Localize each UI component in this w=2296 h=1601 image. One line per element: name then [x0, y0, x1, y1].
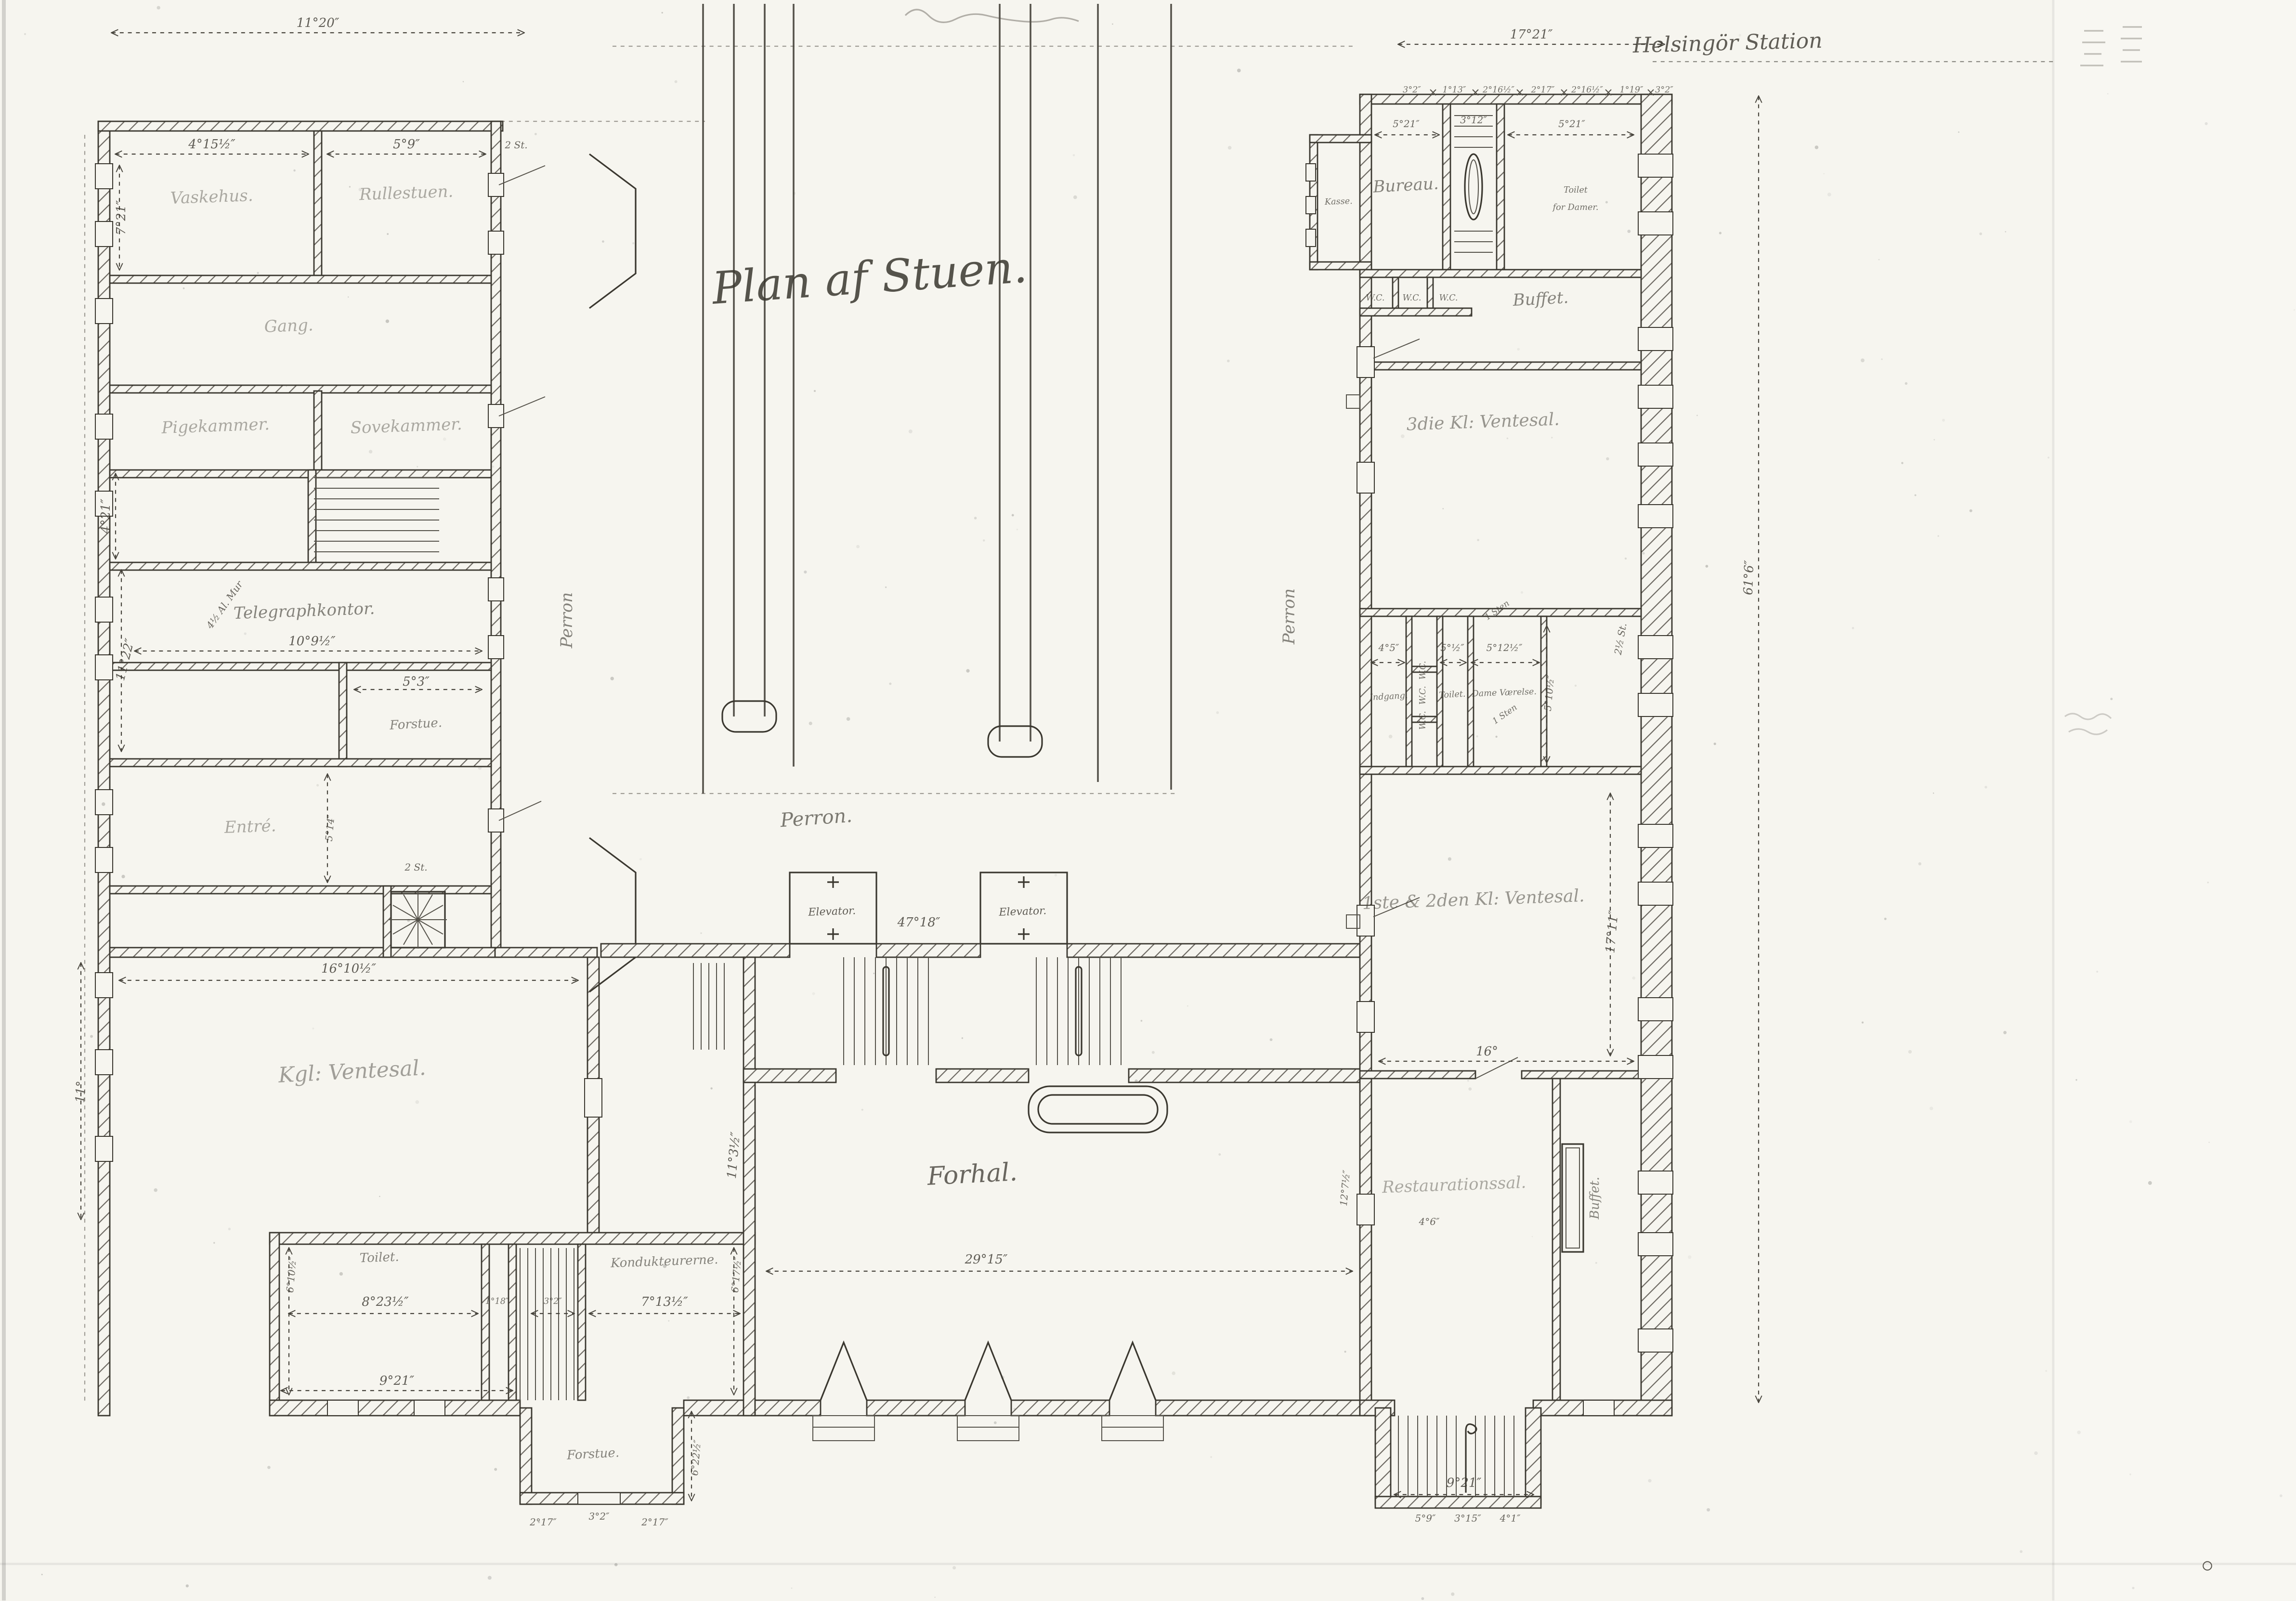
dim-label: 11°22″	[113, 637, 138, 682]
dim-label: 3°2″	[1403, 85, 1421, 95]
dim-label: 2°17″	[1531, 85, 1555, 95]
room-label: Buffet.	[1588, 1177, 1602, 1220]
dim-label: 16°10½″	[321, 962, 376, 976]
dim-label: 5°21″	[1393, 118, 1420, 130]
room-label: Forstue.	[389, 716, 442, 733]
dim-label: 1°13″	[1443, 85, 1466, 95]
room-label: Toilet.	[1439, 690, 1466, 701]
dim-label: 3°2″	[544, 1297, 562, 1306]
bay-window	[589, 154, 636, 308]
elevator-label: Elevator.	[998, 905, 1047, 918]
room-label: W.C.	[1418, 661, 1428, 679]
room-label: Bureau.	[1372, 174, 1439, 196]
stair-newel-inner	[1469, 160, 1478, 214]
dim-label: 5°10½″	[1542, 674, 1556, 711]
perron-label: Perron	[1279, 588, 1299, 645]
room-label: Dame Værelse.	[1471, 687, 1537, 699]
dim-label: 11°20″	[297, 16, 339, 30]
dim-label: 7°13½″	[641, 1295, 688, 1309]
dim-label: 47°18″	[897, 915, 940, 930]
stair-treads	[314, 478, 439, 552]
dim-label: 61°6″	[1741, 560, 1757, 596]
right-wing	[1306, 94, 1673, 1508]
paper-right-band	[2053, 0, 2296, 1601]
dim-label: 11°	[73, 1080, 89, 1104]
wall-note: 1 Sten	[1491, 703, 1519, 726]
dim-label: 1°18″	[485, 1297, 509, 1306]
room-label: Buffet.	[1512, 288, 1569, 310]
left-wing	[95, 121, 636, 1416]
dim-label: 2°16½″	[1571, 85, 1603, 95]
room-label: Entré.	[223, 816, 276, 837]
windbreak	[1029, 1086, 1167, 1132]
dim-label: 6°22½″	[689, 1439, 703, 1476]
dim-label: 4°1″	[1500, 1512, 1521, 1524]
dim-label: 1°19″	[1620, 85, 1644, 95]
dim-label: 5°21″	[1558, 118, 1585, 130]
perron-label: Perron	[557, 592, 576, 649]
dim-label: 5°9″	[393, 137, 420, 152]
dim-label: 6°10½″	[284, 1256, 299, 1293]
room-label: for Damer.	[1552, 203, 1599, 212]
track-area	[613, 4, 1356, 794]
room-label: W.C.	[1418, 686, 1428, 704]
room-label: Kasse.	[1324, 196, 1353, 207]
forhal-block	[744, 1069, 1360, 1441]
dim-label: 17°21″	[1510, 27, 1553, 42]
dim-label: 16°	[1476, 1044, 1498, 1059]
room-label: Gang.	[264, 315, 313, 337]
dim-label: 12°7½″	[1338, 1169, 1352, 1206]
dim-label: 2°17″	[529, 1516, 557, 1528]
side-stair-treads	[693, 963, 724, 1050]
dim-label: 8°23½″	[362, 1295, 409, 1309]
storey-note: 2 St.	[404, 861, 427, 873]
room-label: Toilet	[1564, 185, 1588, 195]
dim-label: 2°16½″	[1482, 85, 1514, 95]
stair-treads	[520, 1248, 574, 1400]
scan-speckles	[24, 6, 2295, 1600]
dim-label: 6°17½″	[729, 1256, 744, 1293]
room-label: 1ste & 2den Kl: Ventesal.	[1362, 886, 1585, 913]
room-label: Kondukteurerne.	[610, 1252, 718, 1271]
room-label: W.C.	[1439, 293, 1458, 303]
dim-label: 5°3″	[403, 675, 430, 689]
storey-note: 2 St.	[504, 139, 527, 151]
room-label: Indgang.	[1369, 691, 1408, 703]
station-name: Helsingör Station	[1632, 28, 1823, 58]
spiral-stair-steps	[389, 891, 447, 949]
dim-label: 4°21″	[99, 499, 113, 534]
dim-label: 4°15½″	[188, 137, 235, 152]
room-label: W.C.	[1366, 293, 1384, 303]
main-stair-treads	[1036, 957, 1121, 1065]
room-label: Sovekammer.	[350, 415, 462, 438]
dim-label: 9°21″	[1447, 1476, 1482, 1490]
dim-label: 3°12″	[1460, 114, 1487, 126]
dim-label: 5°14″	[323, 814, 337, 842]
buffer-stop	[988, 726, 1042, 757]
elevator-label: Elevator.	[808, 905, 856, 918]
buffet-counter-inner	[1566, 1148, 1579, 1248]
dim-label: 29°15″	[965, 1252, 1008, 1267]
perron-label: Perron.	[779, 805, 853, 832]
room-label: Telegraphkontor.	[233, 599, 375, 623]
dim-label: 7°21″	[114, 200, 129, 235]
dim-label: 5°12½″	[1486, 642, 1523, 653]
main-stair-treads	[844, 957, 928, 1065]
room-label: Rullestuen.	[358, 182, 453, 205]
buffet-counter	[1562, 1144, 1583, 1252]
ghost-writing-top	[905, 10, 1079, 22]
stair-hall	[601, 872, 1360, 1416]
dim-label: 10°9½″	[288, 634, 336, 649]
dim-label: 5°½″	[1440, 642, 1464, 653]
door-swings	[1373, 339, 1518, 1079]
dim-label: 4°5″	[1378, 642, 1399, 653]
room-label: 3die Kl: Ventesal.	[1406, 409, 1560, 434]
dim-label: 2°17″	[641, 1516, 668, 1528]
dim-label: 5°9″	[1415, 1512, 1436, 1524]
porch-post	[1346, 395, 1360, 408]
dim-label: 9°21″	[379, 1374, 415, 1388]
buffer-stop	[722, 701, 776, 732]
dim-label: 17°11″	[1603, 910, 1621, 953]
drawing-sheet: Plan af Stuen. Helsingör Station 11°20″ …	[0, 0, 2296, 1601]
dim-label: 3°2″	[589, 1510, 610, 1522]
dim-label: 4°6″	[1419, 1216, 1440, 1227]
east-openings	[488, 173, 602, 1117]
sheet-title: Plan af Stuen.	[709, 241, 1029, 314]
dim-label: 11°3½″	[725, 1131, 743, 1179]
entrance-doors	[813, 1342, 1163, 1441]
room-label: Vaskehus.	[170, 186, 253, 208]
stair-treads	[1454, 116, 1493, 252]
dim-label: 3°2″	[1655, 85, 1673, 95]
room-label: W.C.	[1418, 711, 1428, 729]
room-label: Pigekammer.	[161, 415, 270, 438]
stair-newel	[1465, 154, 1482, 220]
room-label: Restaurationssal.	[1381, 1173, 1526, 1197]
windbreak-inner	[1038, 1095, 1158, 1124]
room-label: Forhal.	[926, 1158, 1018, 1191]
dim-label: 3°15″	[1454, 1512, 1481, 1524]
room-label: W.C.	[1402, 293, 1421, 303]
storey-note: 2½ St.	[1612, 622, 1629, 656]
paper-artifacts	[0, 0, 2296, 1601]
floor-plan-svg: Plan af Stuen. Helsingör Station 11°20″ …	[0, 0, 2296, 1601]
room-label: Forstue.	[566, 1445, 619, 1463]
door-swings	[499, 166, 545, 820]
room-label: Toilet.	[359, 1250, 399, 1266]
room-label: Kgl: Ventesal.	[277, 1055, 427, 1088]
